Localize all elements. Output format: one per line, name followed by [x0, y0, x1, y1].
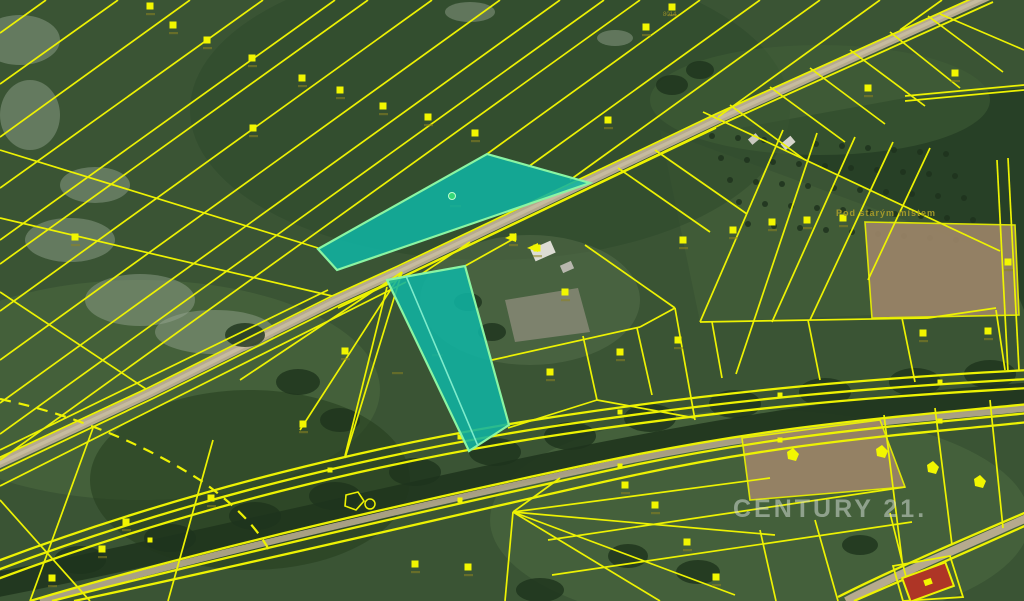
parcel-marker [170, 22, 177, 29]
parcel-marker [99, 546, 106, 553]
parcel-marker [72, 234, 79, 241]
line-node [938, 419, 943, 424]
parcel-marker [547, 369, 554, 376]
parcel-marker [952, 70, 959, 77]
parcel-marker [147, 3, 154, 10]
parcel-marker [652, 502, 659, 509]
line-node [778, 438, 783, 443]
parcel-marker [412, 561, 419, 568]
parcel-marker [713, 574, 720, 581]
parcel-marker [804, 217, 811, 224]
line-node [148, 538, 153, 543]
line-node [778, 393, 783, 398]
parcel-marker [920, 330, 927, 337]
line-node [458, 498, 463, 503]
parcel-marker [123, 519, 130, 526]
parcel-marker [617, 349, 624, 356]
parcel-marker [337, 87, 344, 94]
parcel-marker [730, 227, 737, 234]
parcel-marker [684, 539, 691, 546]
parcel-marker [49, 575, 56, 582]
parcel-marker [675, 337, 682, 344]
line-node [618, 464, 623, 469]
parcel-marker [380, 103, 387, 110]
parcel-marker [669, 4, 676, 11]
line-node [938, 380, 943, 385]
place-name-label: Pod starým místem [836, 208, 936, 218]
parcel-marker [299, 75, 306, 82]
parcel-marker [643, 24, 650, 31]
parcel-marker [605, 117, 612, 124]
parcel-marker [208, 495, 215, 502]
parcel-marker [680, 237, 687, 244]
parcel-marker [562, 289, 569, 296]
highlight-parcel-marker [449, 193, 456, 200]
line-node [328, 468, 333, 473]
parcel-marker [250, 125, 257, 132]
parcel-marker [622, 482, 629, 489]
parcel-marker [1005, 259, 1012, 266]
parcel-marker [465, 564, 472, 571]
parcel-marker [985, 328, 992, 335]
cadastral-map-image: Pod starým místem 8014 CENTURY 21. [0, 0, 1024, 601]
century21-watermark: CENTURY 21. [733, 495, 927, 524]
parcel-marker [865, 85, 872, 92]
parcel-marker [249, 55, 256, 62]
parcel-marker [425, 114, 432, 121]
parcel-marker [204, 37, 211, 44]
parcel-number-label: 8014 [663, 12, 676, 18]
parcel-marker [472, 130, 479, 137]
line-node [618, 410, 623, 415]
parcel-marker [342, 348, 349, 355]
parcel-marker [300, 421, 307, 428]
parcel-marker [769, 219, 776, 226]
